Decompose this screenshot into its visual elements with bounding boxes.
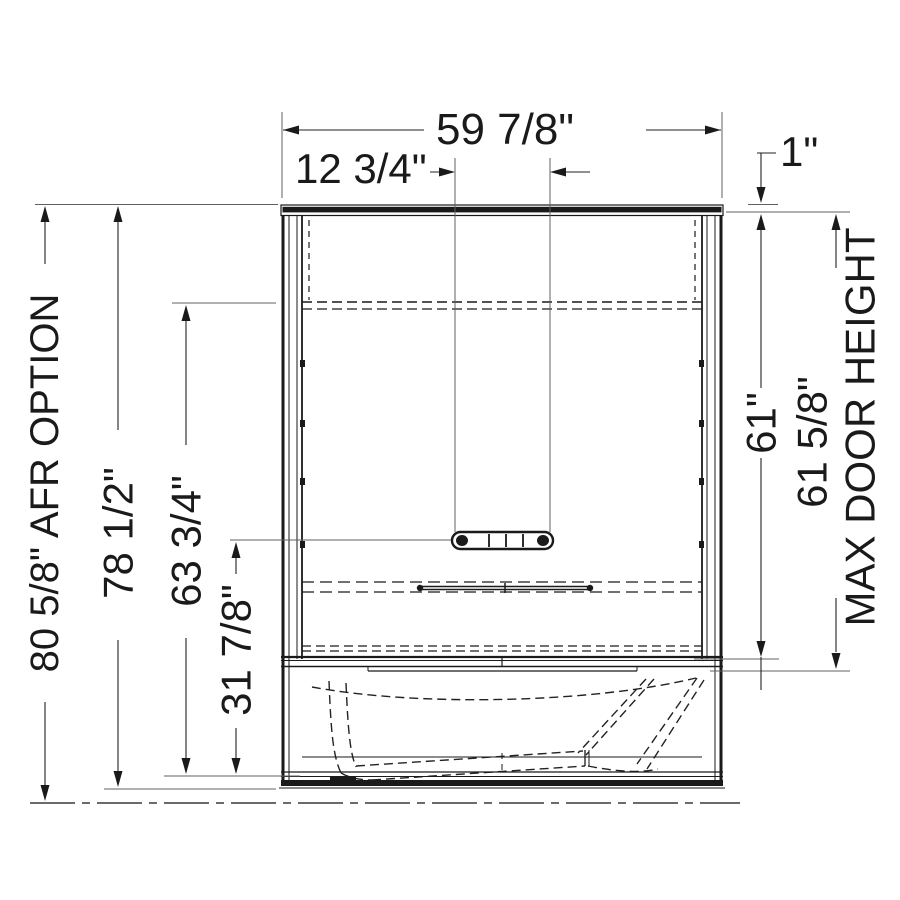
max-door-height-note: MAX DOOR HEIGHT [837,227,884,626]
dim-wall-top-height: 63 3/4" [163,305,210,774]
dim-grab-bar-height: 31 7/8" [213,542,260,774]
door-opening-height-label: 61" [738,392,785,454]
grab-bar-height-label: 31 7/8" [213,584,260,716]
top-clearance-label: 1" [780,128,818,175]
tub-hidden-profile [312,678,704,781]
overall-width-label: 59 7/8" [436,105,574,154]
mid-ledge [302,582,702,593]
left-wall [283,215,309,783]
grab-bar-width-label: 12 3/4" [295,145,427,192]
grab-bar [452,532,553,549]
tub-deck [281,657,723,671]
dim-max-door-height: 61 5/8" MAX DOOR HEIGHT [789,214,884,669]
afr-option-height-label: 80 5/8" AFR OPTION [23,294,67,673]
technical-drawing: 59 7/8" 12 3/4" 1" 61" 61 5/8" MAX DOOR … [0,0,900,900]
drawing-sheet: 59 7/8" 12 3/4" 1" 61" 61 5/8" MAX DOOR … [0,0,900,900]
wall-bottom-trim [302,646,702,651]
dim-overall-height: 78 1/2" [95,206,142,787]
dim-top-clearance: 1" [757,128,819,230]
extension-lines [35,112,850,789]
dim-afr-option-height: 80 5/8" AFR OPTION [23,206,67,801]
max-door-height-value: 61 5/8" [789,376,836,508]
unit-base [279,757,725,788]
right-wall [695,215,721,783]
back-wall-top-trim [302,302,702,309]
unit-top-rail [281,205,723,216]
overall-height-label: 78 1/2" [95,467,142,599]
dim-door-opening-height: 61" [738,230,785,690]
wall-top-height-label: 63 3/4" [163,475,210,607]
